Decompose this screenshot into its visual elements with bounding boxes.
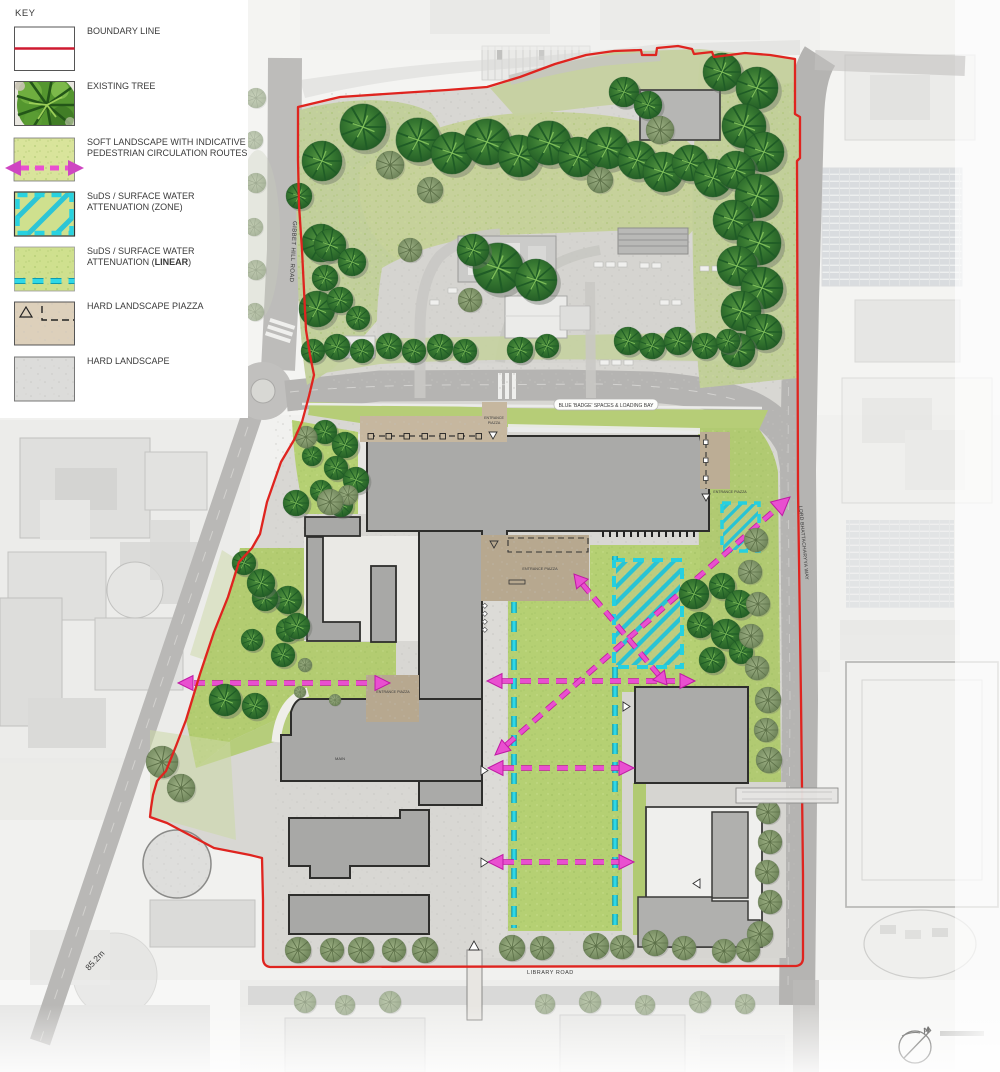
svg-text:MAIN: MAIN bbox=[335, 756, 345, 761]
svg-text:HARD LANDSCAPE: HARD LANDSCAPE bbox=[87, 356, 170, 366]
svg-text:HARD LANDSCAPE PIAZZA: HARD LANDSCAPE PIAZZA bbox=[87, 301, 204, 311]
svg-text:BOUNDARY LINE: BOUNDARY LINE bbox=[87, 26, 160, 36]
svg-text:LIBRARY ROAD: LIBRARY ROAD bbox=[527, 970, 574, 976]
svg-text:SuDS / SURFACE WATER: SuDS / SURFACE WATER bbox=[87, 191, 195, 201]
svg-text:ENTRANCE PIAZZA: ENTRANCE PIAZZA bbox=[713, 490, 747, 494]
svg-text:ATTENUATION (LINEAR): ATTENUATION (LINEAR) bbox=[87, 257, 191, 267]
svg-text:PEDESTRIAN CIRCULATION ROUTES: PEDESTRIAN CIRCULATION ROUTES bbox=[87, 148, 247, 158]
svg-text:EXISTING TREE: EXISTING TREE bbox=[87, 81, 155, 91]
svg-text:SuDS / SURFACE WATER: SuDS / SURFACE WATER bbox=[87, 246, 195, 256]
svg-text:ATTENUATION (ZONE): ATTENUATION (ZONE) bbox=[87, 202, 183, 212]
svg-text:SOFT LANDSCAPE WITH INDICATIVE: SOFT LANDSCAPE WITH INDICATIVE bbox=[87, 137, 246, 147]
svg-text:BLUE 'BADGE' SPACES & LOADING: BLUE 'BADGE' SPACES & LOADING BAY bbox=[559, 403, 654, 409]
svg-text:ENTRANCE PIAZZA: ENTRANCE PIAZZA bbox=[522, 567, 558, 571]
svg-text:ENTRANCE PIAZZA: ENTRANCE PIAZZA bbox=[376, 690, 410, 694]
svg-text:KEY: KEY bbox=[15, 8, 36, 19]
svg-text:PIAZZA: PIAZZA bbox=[488, 421, 501, 425]
svg-text:ENTRANCE: ENTRANCE bbox=[484, 416, 504, 420]
